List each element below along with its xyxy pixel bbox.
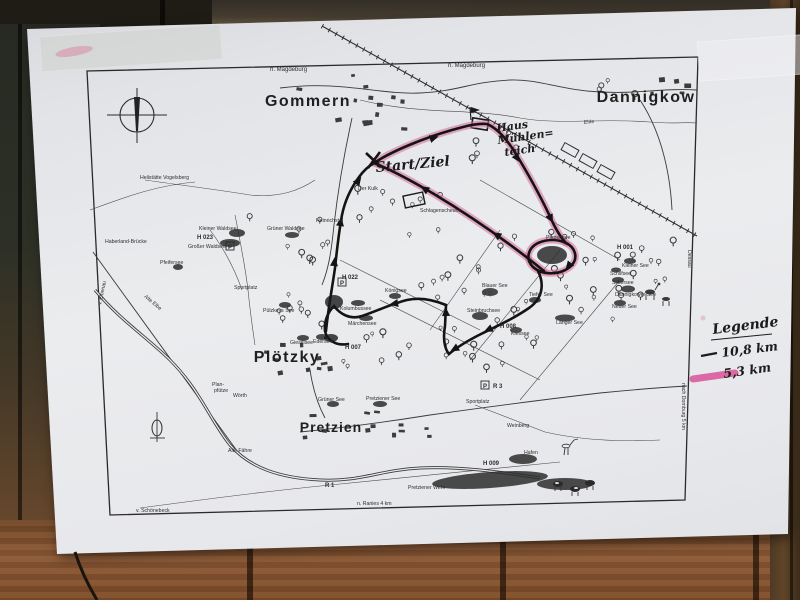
legend-item-10-8km: 10,8 km xyxy=(721,338,779,360)
poi-heilstaette-vogelsberg: Heilstätte Vogelsberg xyxy=(140,175,189,181)
lake-label: Märchensee xyxy=(348,321,377,327)
lake-label: Pfeifersee xyxy=(160,260,183,266)
poi-sportplatz-pretzien: Sportplatz xyxy=(466,399,490,405)
poi-h008: H 008 xyxy=(500,324,517,330)
poi-h007: H 007 xyxy=(345,345,362,351)
poi-der-kulk: Der Kulk xyxy=(358,186,378,192)
twig xyxy=(75,552,97,600)
direction-dornburg: nach Dornburg 5 km xyxy=(680,383,686,430)
poi-planpfuetze: pfütze xyxy=(214,388,228,394)
town-label-pretzien: Pretzien xyxy=(300,419,362,435)
parking-p: P xyxy=(228,245,232,251)
pink-smear xyxy=(55,44,94,59)
handwriting-haus-muehlenteich: Haus Mühlen= teich xyxy=(495,118,555,159)
lake-label: Schilfsee xyxy=(610,271,631,277)
horse-rider-illustration xyxy=(150,412,165,442)
poi-weinberg: Weinberg xyxy=(507,423,529,429)
lake-label: Kleiner Waldsee xyxy=(199,226,237,232)
direction-dessau: Dessau xyxy=(686,250,692,268)
poi-h023: H 023 xyxy=(197,235,214,241)
parking-p: P xyxy=(340,281,344,287)
lake-label: Silbersee xyxy=(612,280,634,286)
lake-label: Grüner See xyxy=(318,397,345,403)
lake-label: Großer Waldsee xyxy=(188,244,226,250)
train-illustration xyxy=(561,143,615,180)
river-label-alte-elbe: Alte Elbe xyxy=(143,294,163,312)
town-label-dannigkow: Dannigkow xyxy=(597,89,696,106)
lake-label: Königsee xyxy=(385,288,407,294)
poi-sportplatz-west: Sportplatz xyxy=(234,285,258,291)
poi-schlagenscheune: Schlagenscheune xyxy=(420,208,461,214)
route-marker-r1: R 1 xyxy=(325,483,335,489)
parking-p: P xyxy=(483,384,487,390)
lake-label: Dannigkower See xyxy=(615,292,656,298)
poi-h022: H 022 xyxy=(342,275,359,281)
compass-rose-icon xyxy=(107,88,167,143)
direction-magdeburg-ne: n. Magdeburg xyxy=(448,63,485,69)
river-label-ehle: Ehle xyxy=(584,119,595,126)
map-drawing: P P P Gommern Dannigkow Plötzky Pretzien… xyxy=(0,0,800,600)
poi-alte-faehre: Alte Fähre xyxy=(228,448,252,454)
direction-ranies: n. Ranies 4 km xyxy=(357,501,392,507)
poi-heinrichstal: Heinrichstal xyxy=(316,218,343,224)
lake-label: Blauer See xyxy=(482,283,508,289)
stork-illustration xyxy=(562,439,578,455)
lake-label: Tiefer See xyxy=(529,292,553,298)
direction-schoenebeck: v. Schönebeck xyxy=(136,508,170,514)
tape-top-right xyxy=(697,34,800,81)
lake-label: Langer See xyxy=(556,320,583,326)
lake-label: Kolumbussee xyxy=(340,306,372,312)
town-label-gommern: Gommern xyxy=(265,93,351,110)
poi-h009: H 009 xyxy=(483,461,500,467)
lake-label: Plattensee xyxy=(546,235,571,241)
lake-label: Pülzkeys See xyxy=(263,308,295,314)
legend-swatch-black-route xyxy=(701,353,717,356)
lake-label: Kiessee xyxy=(511,331,530,337)
lake-label: Grüner Waldsee xyxy=(267,226,305,232)
poi-h001: H 001 xyxy=(617,245,634,251)
poi-hafen: Hafen xyxy=(524,450,538,456)
route-marker-r3: R 3 xyxy=(493,384,503,390)
poi-pretziener-wehr: Pretziener Wehr xyxy=(408,485,446,491)
lake-label: Gieselsee xyxy=(290,340,313,346)
forest-trees xyxy=(247,79,676,373)
legend: Legende 10,8 km 5,3 km xyxy=(693,314,779,381)
legend-item-5-3km: 5,3 km xyxy=(722,359,772,381)
poi-woerth: Wörth xyxy=(233,393,247,399)
photo-of-map-on-wall: P P P Gommern Dannigkow Plötzky Pretzien… xyxy=(0,0,800,600)
lake-label: Edersee xyxy=(313,339,332,345)
direction-magdeburg-nw: n. Magdeburg xyxy=(270,67,307,73)
lake-label: Neuer See xyxy=(612,304,637,310)
poi-haberland-bruecke: Haberland-Brücke xyxy=(105,239,147,245)
town-label-ploetzky: Plötzky xyxy=(254,349,321,366)
lake-label: Kleiner See xyxy=(622,263,649,269)
lake-label: Pretziener See xyxy=(366,396,400,402)
lake-label: Steinbruchsee xyxy=(467,308,500,314)
